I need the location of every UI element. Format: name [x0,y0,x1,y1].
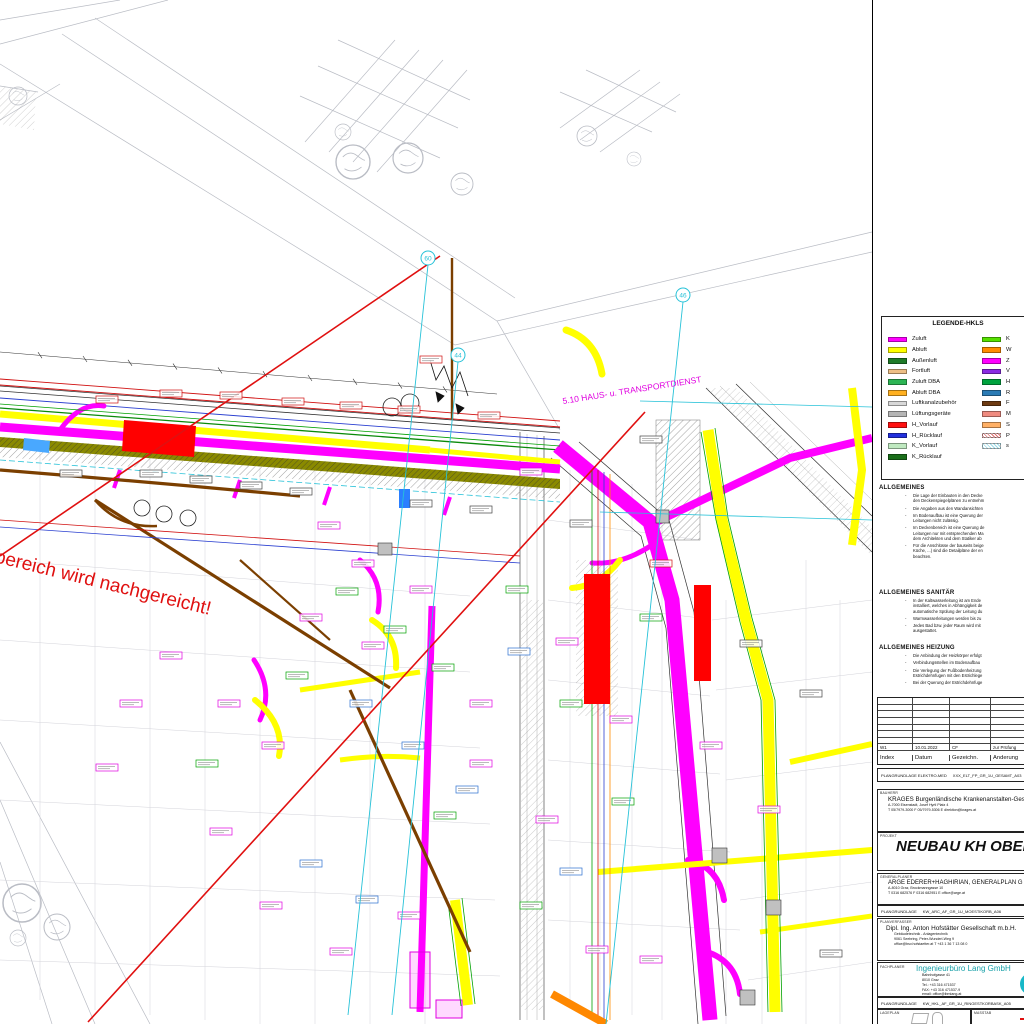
note-text: Die Verlegung der Fußbodenheizung Estric… [913,668,982,679]
massstab-label: MASSTAB [974,1011,1024,1015]
generalplaner-label: GENERALPLANER [880,875,1024,879]
legend-label: P [1006,433,1010,439]
section-title: ALLGEMEINES HEIZUNG [879,645,1024,651]
legend-label: H_Vorlauf [912,422,937,428]
col-header: Datum [913,755,950,761]
legend-label: S [1006,422,1010,428]
legend-swatch [888,390,907,396]
planverfasser-box: PLANVERFASSER Dipl. Ing. Anton Hofstätte… [877,918,1024,961]
legend-left-column: Zuluft Abluft Außenluft Fortluft Zuluft … [888,334,956,462]
legend-swatch [888,411,907,417]
red-duct-block [122,420,196,457]
lageplan-sketch [932,1012,943,1024]
note-text: In der Kaltwasserleitung ist am Ende ins… [913,598,982,614]
legend-swatch [888,401,907,407]
legend-swatch [982,401,1001,407]
legend-box: LEGENDE-HKLS Zuluft Abluft Außenluft For… [881,316,1024,480]
plangrundlage-elektro-strip: PLANGRUNDLAGE ELEKTRO-MED XXX_ELT_FP_GR_… [877,768,1024,782]
fachplaner-box: FACHPLANER Ingenieurbüro Lang GmbH Bahnh… [877,962,1024,997]
project-title: NEUBAU KH OBERW [896,838,1024,855]
note-text: Verbindungsstellen im Bodenaufbau [913,660,980,665]
section-title: ALLGEMEINES [879,485,1024,491]
legend-swatch [982,358,1001,364]
col-header: Änderung [991,755,1024,761]
legend-swatch-hatched [982,443,1001,449]
legend-swatch [888,454,907,460]
legend-label: Zuluft DBA [912,379,940,385]
plangrundlage-label: PLANGRUNDLAGE [881,1001,917,1006]
legend-label: M [1006,411,1011,417]
site-hatch-patch [0,86,36,130]
planverfasser-line4: office@bsv.hofstaetter.at T +43 1 36 7 1… [894,942,1024,947]
legend-label: Lüftungsgeräte [912,411,951,417]
red-note-text: bereich wird nachgereicht! [0,546,213,619]
note-text: Warmwasserleitungen werden bis zu [913,616,981,621]
title-block-panel: LEGENDE-HKLS Zuluft Abluft Außenluft For… [872,0,1024,1024]
note-text: Jedes Bad bzw. jeder Raum wird mit ausge… [913,623,981,634]
blue-patch [399,489,410,508]
projekt-box: PROJEKT NEUBAU KH OBERW [877,832,1024,871]
legend-label: K [1006,336,1010,342]
note-text: Die Lage der Einbauten in den Decke den … [913,493,984,504]
legend-swatch [982,379,1001,385]
plangrundlage-label: PLANGRUNDLAGE [881,909,917,914]
legend-swatch [888,422,907,428]
lageplan-box: LAGEPLAN [877,1009,971,1024]
fachplaner-name: Ingenieurbüro Lang GmbH [916,964,1024,973]
massstab-box: MASSTAB [971,1009,1024,1024]
magenta-box [436,1000,462,1018]
plan-sheet: 60 46 44 5.10 HAUS- u. TRANSPORTDIENST b… [0,0,1024,1024]
heizung-section: ALLGEMEINES HEIZUNG -Die Anbindung der H… [879,645,1024,685]
revision-cloud-lines [0,256,645,1022]
legend-label: H [1006,379,1010,385]
massstab-mark [1020,1018,1024,1020]
site-plan-lines [0,0,872,1024]
note-text: Im Bodenaufbau ist eine Querung der Leit… [913,513,983,524]
legend-swatch-hatched [982,433,1001,439]
note-text: Die Anbindung der Heizkörper erfolgt [913,653,982,658]
floor-plan-canvas: 60 46 44 5.10 HAUS- u. TRANSPORTDIENST b… [0,0,1024,1024]
legend-label: Außenluft [912,358,937,364]
red-riser [694,585,711,681]
note-text: Bei der Querung der Estrichdehnfuge [913,680,982,685]
bauherr-label: BAUHERR [880,791,1024,795]
col-header: Index [878,755,913,761]
legend-swatch [982,390,1001,396]
planverfasser-name: Dipl. Ing. Anton Hofstätter Gesellschaft… [886,925,1024,932]
generalplaner-box: GENERALPLANER ARGE EDERER+HAGHIRIAN, GEN… [877,873,1024,905]
sanitaer-section: ALLGEMEINES SANITÄR -In der Kaltwasserle… [879,590,1024,634]
plangrundlage-value: KW_ARC_AF_GR_1U_MOESTIKORB_A06 [923,909,1001,914]
legend-swatch [888,433,907,439]
allgemeines-section: ALLGEMEINES -Die Lage der Einbauten in d… [879,485,1024,559]
legend-swatch [982,347,1001,353]
legend-label: Z [1006,358,1010,364]
section-title: ALLGEMEINES SANITÄR [879,590,1024,596]
grid-bubble-label: 44 [454,353,462,360]
legend-swatch [982,411,1001,417]
legend-label: Abluft DBA [912,390,940,396]
note-text: Für die Anschlüsse der bauseits beige Kü… [913,543,984,559]
red-riser [584,574,610,704]
legend-title: LEGENDE-HKLS [882,320,1024,327]
legend-swatch [888,379,907,385]
legend-label: Fortluft [912,368,930,374]
plangrundlage-value: KW_HKL_AF_GR_1U_RINGESTKORBASK_A05 [923,1001,1011,1006]
legend-swatch [888,337,907,343]
col-header: Gezeichn. [950,755,991,761]
magenta-box [410,952,430,1008]
legend-label: H_Rücklauf [912,433,942,439]
legend-swatch [982,337,1001,343]
plangrundlage-hkl-strip: PLANGRUNDLAGE KW_HKL_AF_GR_1U_RINGESTKOR… [877,997,1024,1009]
legend-label: Abluft [912,347,927,353]
plangrundlage-arc-strip: PLANGRUNDLAGE KW_ARC_AF_GR_1U_MOESTIKORB… [877,905,1024,917]
legend-label: K_Rücklauf [912,454,942,460]
corridor-hatch [521,600,543,1010]
note-text: Die Angaben aus den Wandansichten [913,506,983,511]
revision-header-row: Index Datum Gezeichn. Änderung [878,750,1024,764]
service-lines [0,470,610,1020]
generalplaner-contact: T 0316 682576 F 0316 682951 E office@arg… [888,891,1024,896]
fittings-cluster [430,360,468,414]
legend-label: W [1006,347,1011,353]
revision-table: W1 10.01.2022 CF zur Prüfung Index Datum… [877,697,1024,765]
plangrundlage-label: PLANGRUNDLAGE ELEKTRO-MED [881,773,947,778]
legend-swatch [982,369,1001,375]
plangrundlage-value: XXX_ELT_FP_GR_1U_GESAMT_A03 [953,773,1022,778]
legend-right-column: K W Z V H R F M S P s [982,334,1024,452]
bauherr-contact: T 05/7979-3000 F 05/7979-5306 E direktio… [888,808,1024,813]
grid-bubble-label: 46 [679,293,687,300]
legend-swatch [888,358,907,364]
legend-label: F [1006,400,1010,406]
revision-row: W1 10.01.2022 CF zur Prüfung [878,743,1024,750]
legend-label: K_Vorlauf [912,443,937,449]
legend-label: Zuluft [912,336,927,342]
legend-label: Luftkanalzubehör [912,400,956,406]
note-text: Im Deckenbereich ist eine Querung de Lei… [913,525,984,541]
legend-swatch [888,347,907,353]
bauherr-box: BAUHERR KRAGES Burgenländische Krankenan… [877,789,1024,832]
grid-bubble-label: 60 [424,256,432,263]
legend-swatch [888,443,907,449]
legend-swatch [982,422,1001,428]
fachplaner-label: FACHPLANER [880,965,905,969]
legend-label: R [1006,390,1010,396]
bauherr-name: KRAGES Burgenländische Krankenanstalten-… [888,796,1024,803]
corridor-label: 5.10 HAUS- u. TRANSPORTDIENST [562,374,702,406]
lageplan-sketch [911,1013,929,1024]
legend-label: s [1006,443,1009,449]
brown-pipes [0,258,470,952]
legend-swatch [888,369,907,375]
legend-label: V [1006,368,1010,374]
planverfasser-label: PLANVERFASSER [880,920,1024,924]
